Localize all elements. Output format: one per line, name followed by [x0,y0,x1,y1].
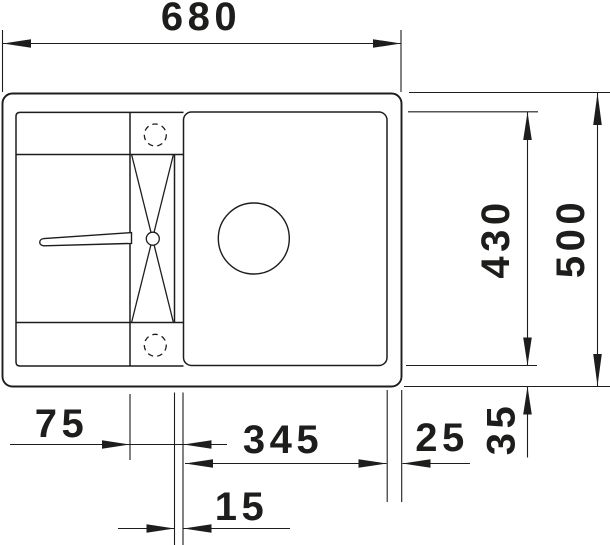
arrowhead-15-left [184,524,212,533]
dim-label-35: 35 [480,402,524,456]
dim-label-345: 345 [243,418,323,462]
arrowhead-430-top [523,112,532,140]
drawing-canvas: 680 430 35 500 75 [0,0,610,545]
dim-label-75: 75 [35,402,89,446]
dim-label-500: 500 [549,198,593,278]
arrowhead-15-right [147,524,175,533]
dim-label-15: 15 [215,485,269,529]
dim-label-680: 680 [161,0,241,39]
dim-bottom-side: 75 345 25 15 [10,390,470,545]
arrowhead-345-right [359,459,387,468]
arrowhead-75-right [102,440,130,449]
bowl-outline [184,112,388,366]
dim-label-25: 25 [415,416,469,460]
arrowhead-35 [523,387,532,415]
arrowhead-25 [403,459,431,468]
arrowhead-345-left [185,459,213,468]
arrowhead-430-bottom [523,338,532,366]
dim-label-430: 430 [474,198,518,278]
tap-hole-top [144,124,166,146]
sink-dimension-drawing: 680 430 35 500 75 [0,0,610,545]
dim-overall-width: 680 [3,0,402,92]
dim-right-side: 430 35 500 [404,93,610,458]
sink-body [3,94,402,387]
tap-lever [40,233,132,246]
arrowhead-75-left [184,440,212,449]
arrowhead-left [3,39,31,48]
arrowhead-right [373,39,401,48]
channel-drain-circle [146,232,159,245]
arrowhead-500-bottom [593,354,602,386]
bowl-drain-hole [218,203,289,274]
arrowhead-500-top [593,93,602,125]
tap-hole-bottom [144,334,166,356]
